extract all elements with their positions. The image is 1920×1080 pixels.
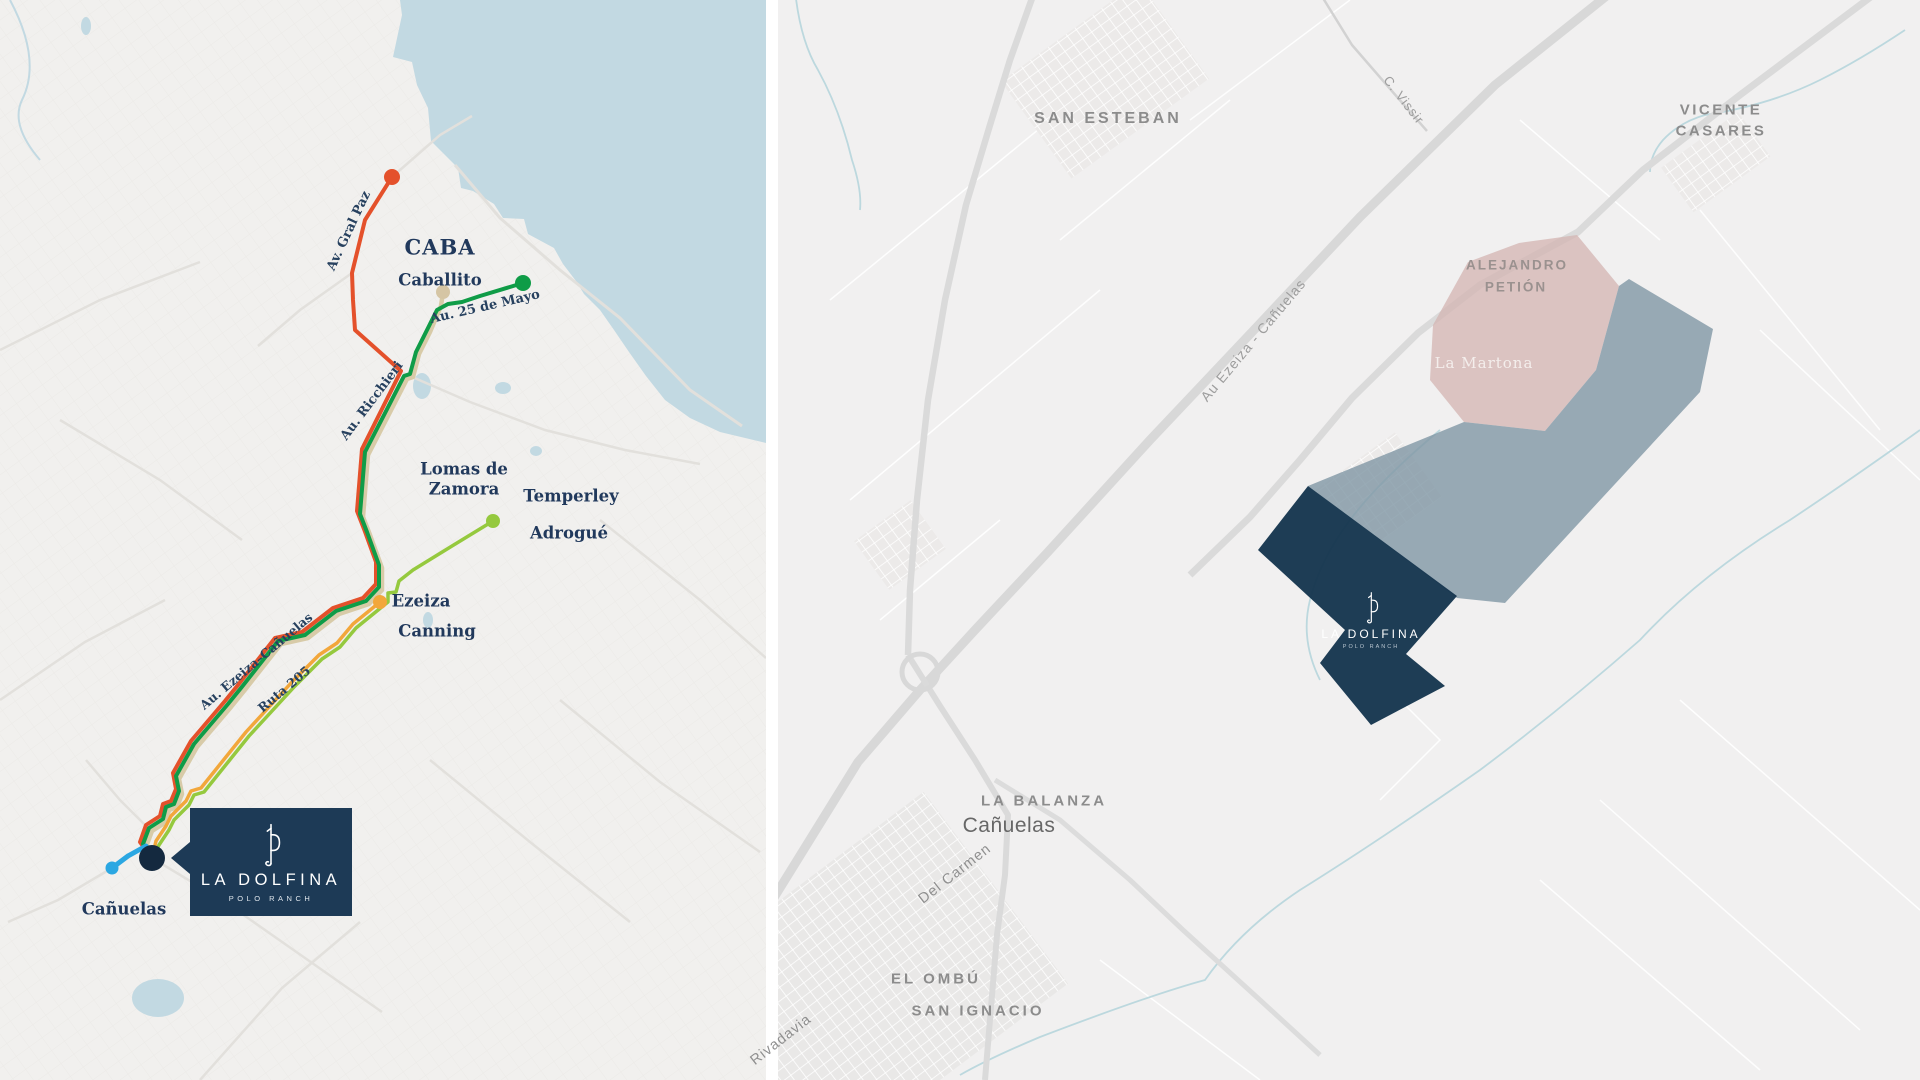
label-alejandro-line2: PETIÓN [1485,280,1547,295]
marker-destination [139,845,165,871]
label-san-ignacio: SAN IGNACIO [911,1003,1044,1020]
label-vicente-line2: CASARES [1676,123,1767,140]
label-adrogue: Adrogué [530,524,608,543]
marker-temperley-start [486,514,500,528]
ranch-map [778,0,1920,1080]
la-dolfina-monogram-icon [259,821,283,867]
brand-name: LA DOLFINA [201,871,341,890]
la-dolfina-monogram-icon [1362,590,1380,624]
label-la-balanza: LA BALANZA [981,793,1107,810]
label-canuelas-right: Cañuelas [963,814,1056,838]
ranch-brand-subtitle: POLO RANCH [1343,644,1399,650]
ranch-brand-mark: LA DOLFINA POLO RANCH [1321,590,1420,650]
brand-card: LA DOLFINA POLO RANCH [190,808,352,916]
label-canning: Canning [398,622,476,641]
brand-subtitle: POLO RANCH [229,894,314,903]
label-san-esteban: SAN ESTEBAN [1034,110,1182,128]
marker-canuelas-end [106,862,119,875]
label-lomas-line1: Lomas de [420,460,508,479]
ranch-brand-name: LA DOLFINA [1321,627,1420,641]
label-canuelas-left: Cañuelas [82,900,167,919]
label-lomas-line2: Zamora [429,480,500,499]
label-temperley: Temperley [523,487,618,506]
label-vicente-line1: VICENTE [1680,102,1763,119]
label-el-ombu: EL OMBÚ [891,971,981,988]
label-ezeiza: Ezeiza [392,592,451,611]
location-maps: CABA Caballito Lomas de Zamora Temperley… [0,0,1920,1080]
marker-ezeiza [373,595,387,609]
label-caba: CABA [404,235,475,260]
label-alejandro-line1: ALEJANDRO [1466,258,1568,273]
label-caballito: Caballito [398,271,481,290]
label-la-martona: La Martona [1435,354,1534,372]
brand-card-pointer [171,842,190,874]
marker-gral-paz-start [384,169,400,185]
